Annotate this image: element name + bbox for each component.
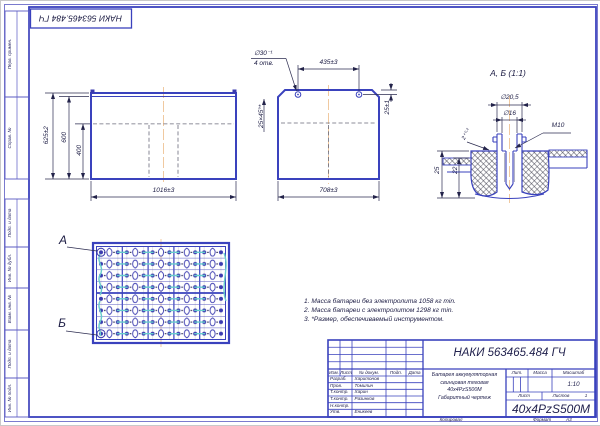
copied-label: Копировал bbox=[421, 418, 481, 423]
staff-role-5: Утв. bbox=[330, 410, 340, 415]
plan-marker-b: Б bbox=[55, 317, 69, 329]
side-view bbox=[251, 59, 397, 202]
title-block-designation: НАКИ 563465.484 ГЧ bbox=[424, 348, 595, 360]
rev-header-list: Лист bbox=[340, 371, 352, 376]
top-stamp-code: НАКИ 563465.484 ГЧ bbox=[31, 14, 130, 23]
staff-name-0: Харитонов bbox=[355, 377, 380, 382]
detail-thread: М10 bbox=[548, 123, 568, 130]
margin-label-inv-podl: Инв. № подл. bbox=[8, 368, 14, 426]
rev-header-date: Дата bbox=[406, 371, 423, 376]
dim-side-hole-dia: ∅30⁻¹ bbox=[254, 51, 273, 58]
drawing-sheet: НАКИ 563465.484 ГЧ Перв. примен. Справ. … bbox=[0, 0, 600, 426]
description-line-2: свинцовая тяговая bbox=[423, 381, 506, 386]
sheets-label: Листов bbox=[542, 394, 580, 399]
staff-role-4: Н.контр. bbox=[330, 404, 349, 409]
rev-header-doc: № докум. bbox=[352, 371, 386, 376]
staff-role-1: Пров. bbox=[330, 384, 342, 389]
lit-label: Лит. bbox=[506, 371, 528, 376]
format-label: Формат bbox=[533, 418, 551, 423]
front-view bbox=[45, 87, 237, 201]
dim-front-width: 1016±3 bbox=[144, 188, 184, 195]
margin-label-sprav-no: Справ. № bbox=[8, 108, 14, 168]
dim-side-offset: 25±1 bbox=[385, 87, 392, 127]
dim-front-height-lid: 600 bbox=[61, 117, 68, 157]
staff-name-1: Томилин bbox=[355, 384, 374, 389]
scale-value: 1:10 bbox=[552, 382, 595, 388]
note-1: 1. Масса батареи без электролита 1058 кг… bbox=[304, 299, 456, 306]
staff-name-2: Харин bbox=[355, 390, 368, 395]
margin-label-perv-primen: Перв. примен. bbox=[8, 24, 14, 84]
dim-front-height-total: 625±2 bbox=[44, 115, 51, 155]
note-3: 3. *Размер, обеспечиваемый инструментом. bbox=[304, 317, 444, 324]
sheet-label: Лист bbox=[506, 394, 542, 399]
dim-side-width: 708±3 bbox=[309, 188, 349, 195]
staff-name-3: Разинков bbox=[355, 397, 375, 402]
dim-side-hole-count: 4 отв. bbox=[254, 61, 274, 68]
detail-title: А, Б (1:1) bbox=[478, 69, 538, 78]
dim-front-height-inner: 400 bbox=[77, 130, 84, 170]
sheets-value: 1 bbox=[580, 394, 592, 399]
model-designation: 40x4PzS500M bbox=[507, 403, 595, 415]
staff-name-5: Еникеев bbox=[355, 410, 373, 415]
note-2: 2. Масса батареи с электролитом 1298 кг … bbox=[304, 308, 453, 315]
description-line-4: Габаритный чертеж bbox=[423, 396, 506, 401]
dim-side-pitch: 435±3 bbox=[309, 60, 349, 67]
staff-role-3: Т.контр. bbox=[330, 397, 349, 402]
rev-header-sign: Подп. bbox=[386, 371, 406, 376]
detail-dia-outer: ∅20,5 bbox=[490, 95, 530, 102]
detail-height-total: 25 bbox=[435, 150, 442, 190]
plan-view bbox=[66, 239, 229, 347]
staff-role-2: Т.контр. bbox=[330, 390, 349, 395]
staff-role-0: Разраб. bbox=[330, 377, 347, 382]
mass-label: Масса bbox=[528, 371, 552, 376]
description-line-3: 40x4PzS500M bbox=[423, 388, 506, 393]
detail-height-inner: 22 bbox=[452, 150, 459, 190]
plan-marker-a: А bbox=[56, 234, 70, 246]
dim-side-chamfer: 25×45°* bbox=[259, 96, 266, 136]
detail-dia-inner: ∅16 bbox=[490, 111, 530, 118]
format-value: А3 bbox=[566, 418, 572, 423]
drawing-linework bbox=[1, 1, 600, 425]
description-line-1: Батарея аккумуляторная bbox=[423, 373, 506, 378]
rev-header-izm: Изм. bbox=[328, 371, 340, 376]
scale-label: Масштаб bbox=[552, 371, 595, 376]
